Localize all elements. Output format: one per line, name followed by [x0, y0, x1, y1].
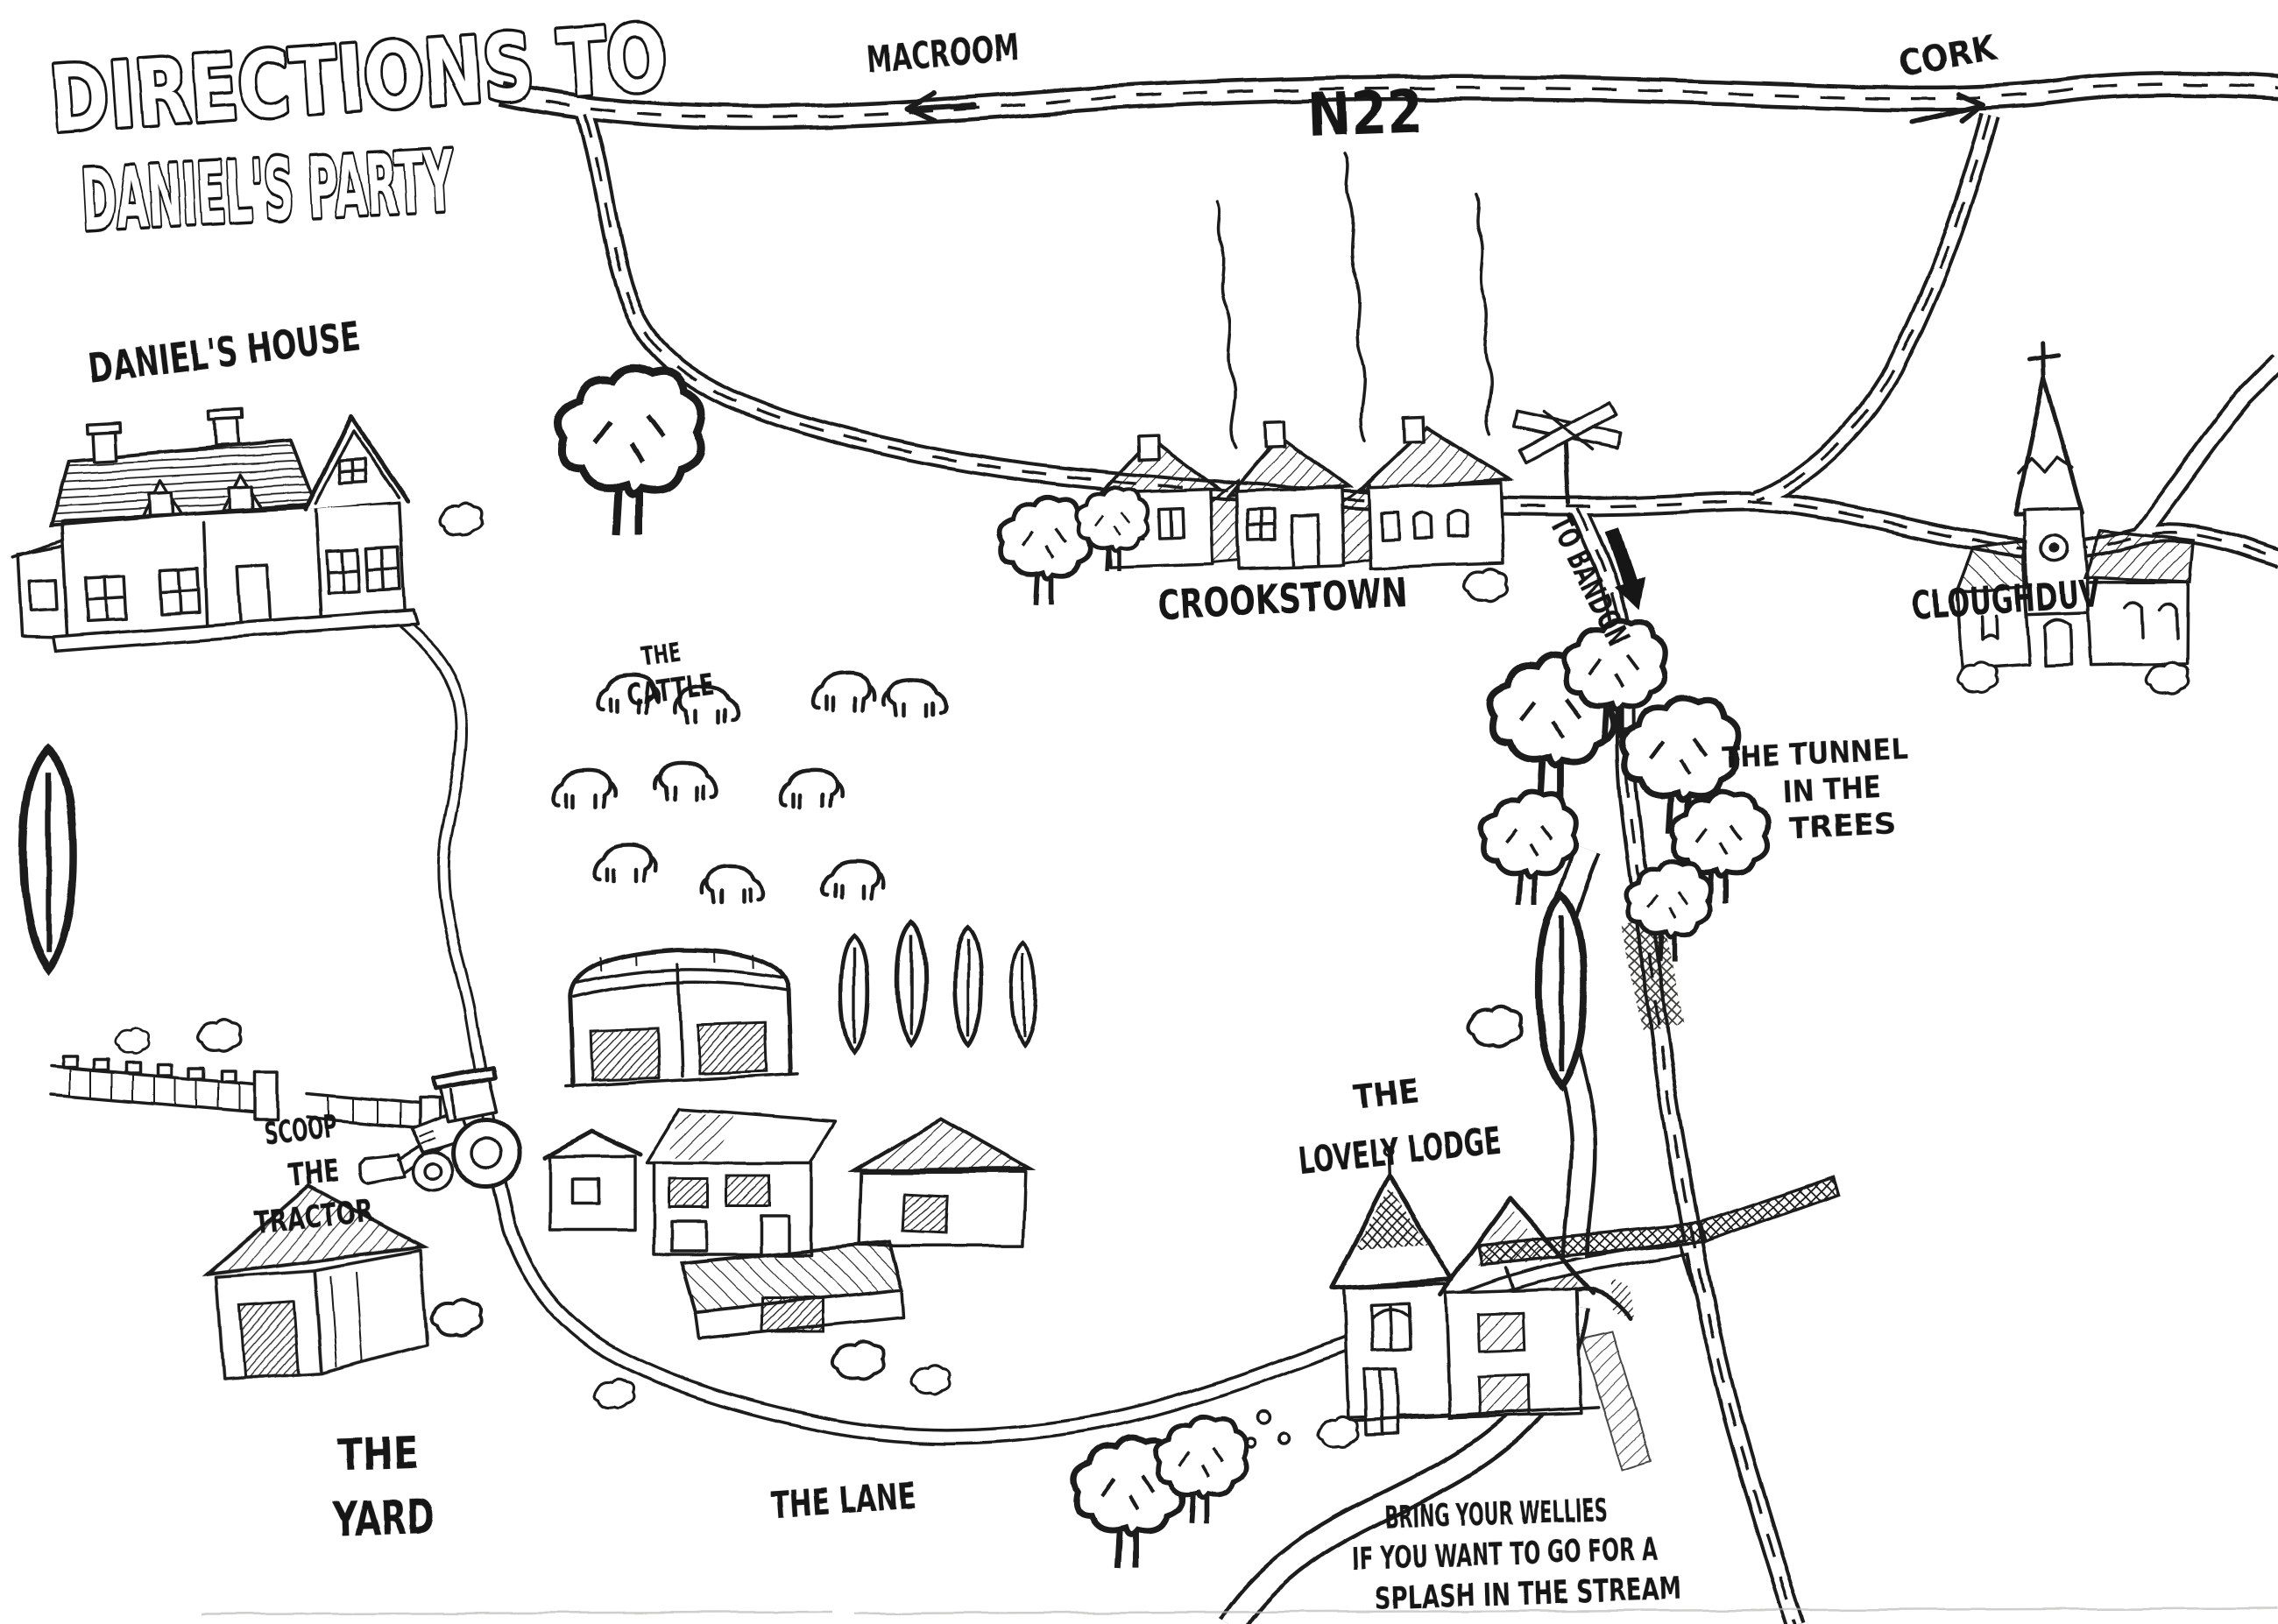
bush-icon	[439, 503, 482, 534]
road-network	[396, 84, 2278, 1624]
title-line-1: DIRECTIONS TO	[46, 4, 670, 153]
stream-stones	[1247, 1411, 1290, 1448]
svg-text:THE: THE	[1352, 1072, 1421, 1118]
lovely-lodge	[1309, 1140, 1600, 1447]
svg-text:IF YOU WANT TO GO FOR A: IF YOU WANT TO GO FOR A	[1351, 1531, 1659, 1578]
stone-wall	[51, 1057, 440, 1137]
title-line-2: DANIEL'S PARTY	[79, 132, 456, 250]
wellies-note: BRING YOUR WELLIES IF YOU WANT TO GO FOR…	[1349, 1490, 1681, 1618]
svg-text:THE: THE	[337, 1427, 420, 1480]
tractor-drawing	[356, 1066, 521, 1195]
lodge-label: THE LOVELY LODGE	[1291, 1064, 1503, 1183]
svg-text:THE TUNNEL: THE TUNNEL	[1722, 731, 1909, 776]
map-canvas: DIRECTIONS TO DANIEL'S PARTY MACROOM N22…	[0, 0, 2278, 1624]
svg-text:IN THE: IN THE	[1782, 770, 1882, 810]
macroom-label: MACROOM	[865, 25, 1022, 81]
crookstown-label: CROOKSTOWN	[1157, 568, 1408, 629]
daniels-house-drawing	[5, 401, 418, 653]
svg-text:LOVELY LODGE: LOVELY LODGE	[1297, 1119, 1503, 1183]
lane-label: THE LANE	[770, 1474, 917, 1527]
n22-label: N22	[1306, 77, 1425, 151]
tall-tree	[23, 749, 74, 968]
big-tree	[558, 367, 702, 535]
signpost-icon	[1514, 403, 1620, 503]
svg-text:YARD: YARD	[331, 1489, 435, 1548]
chimney-smoke	[1476, 194, 1492, 434]
hand-drawn-map: DIRECTIONS TO DANIEL'S PARTY MACROOM N22…	[0, 0, 2278, 1624]
chimney-smoke	[1346, 152, 1368, 440]
svg-text:THE: THE	[287, 1153, 341, 1194]
map-title: DIRECTIONS TO DANIEL'S PARTY	[46, 4, 670, 250]
svg-text:TREES: TREES	[1788, 806, 1897, 846]
farm-buildings	[545, 1109, 1032, 1338]
daniels-house-label: DANIEL'S HOUSE	[86, 312, 363, 392]
cattle-herd	[554, 674, 946, 903]
hay-barn	[562, 946, 797, 1087]
tractor-label: SCOOP THE TRACTOR	[244, 1106, 375, 1241]
svg-text:THE: THE	[640, 638, 682, 674]
yard-label: THE YARD	[329, 1427, 435, 1548]
poplar-row	[841, 921, 1036, 1052]
cork-label: CORK	[1896, 28, 2001, 85]
crookstown-trees	[1000, 488, 1149, 604]
chimney-smoke	[1217, 201, 1237, 448]
cloughduv-label: CLOUGHDUV	[1910, 571, 2101, 629]
tunnel-trees	[1465, 569, 1768, 1087]
svg-text:SCOOP: SCOOP	[263, 1109, 340, 1153]
svg-text:BRING YOUR WELLIES: BRING YOUR WELLIES	[1384, 1493, 1608, 1536]
